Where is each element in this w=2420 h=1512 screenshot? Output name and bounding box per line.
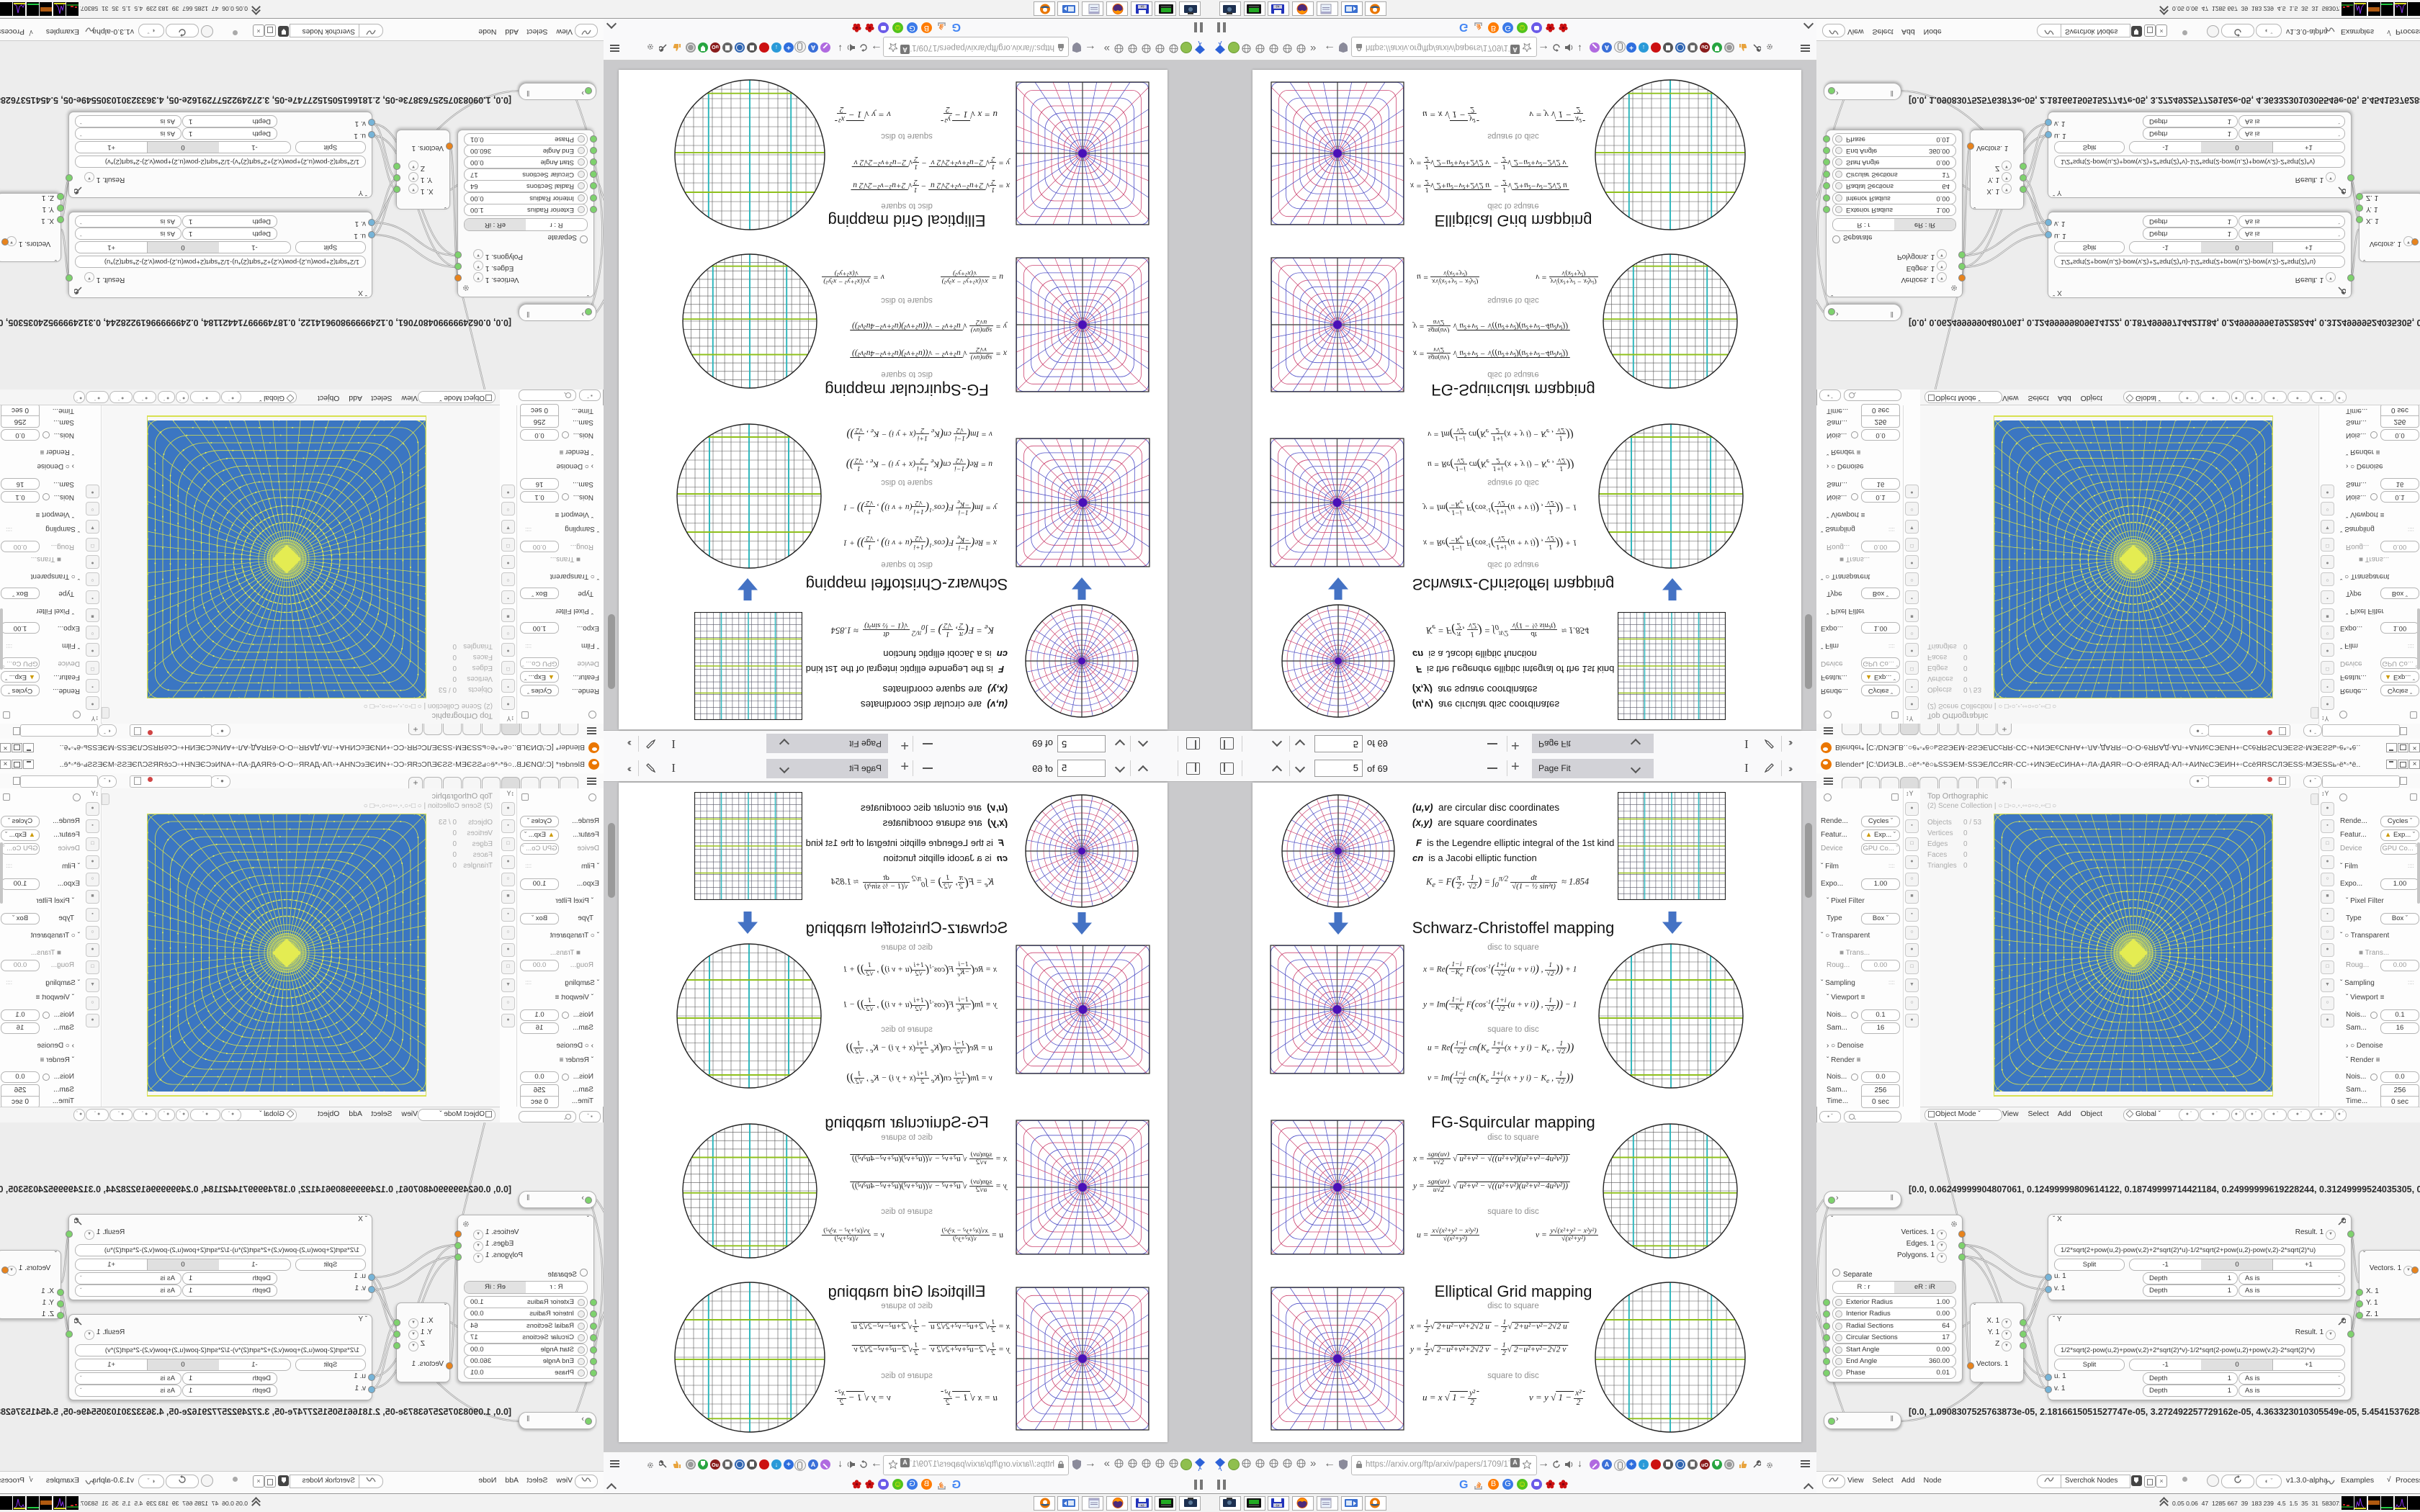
svg-text:64: 64 — [1140, 5, 1144, 9]
svg-text:64: 64 — [1276, 5, 1280, 9]
svg-text:64: 64 — [1276, 1504, 1280, 1508]
svg-text:64: 64 — [1140, 1504, 1144, 1508]
